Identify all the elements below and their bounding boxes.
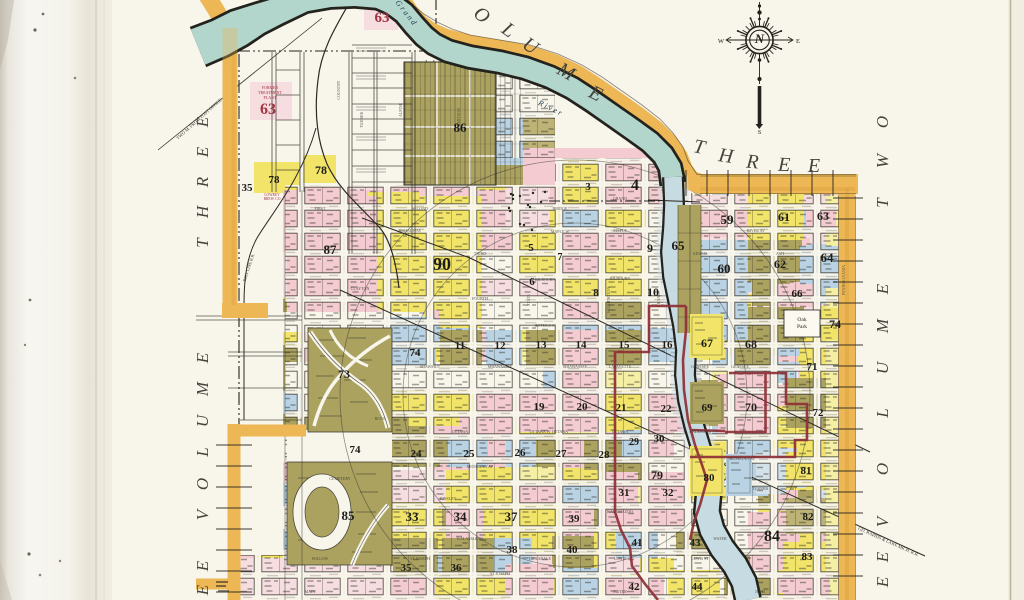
svg-text:O: O [193,478,212,490]
svg-text:E: E [873,551,892,563]
svg-text:ALPINE: ALPINE [398,102,403,117]
svg-text:78: 78 [315,163,327,177]
svg-text:M: M [873,318,892,334]
svg-text:THIRD: THIRD [474,251,486,256]
svg-text:62: 62 [774,257,786,271]
svg-text:40: 40 [567,544,579,556]
svg-text:KILBOURN: KILBOURN [535,277,556,282]
svg-text:CLAYTON: CLAYTON [351,286,370,291]
svg-text:KINSLEY: KINSLEY [439,496,456,501]
svg-text:TURNER: TURNER [359,112,364,128]
svg-text:42: 42 [629,581,641,593]
svg-text:SHAWMUT: SHAWMUT [420,364,441,369]
svg-text:U: U [193,413,212,427]
svg-text:65: 65 [672,238,686,253]
svg-text:24: 24 [411,448,423,460]
svg-text:OTTAWA: OTTAWA [552,429,568,434]
svg-text:9: 9 [647,241,653,255]
svg-text:61: 61 [778,210,790,224]
svg-text:FOURTH: FOURTH [472,296,488,301]
svg-text:RIVER AV: RIVER AV [747,228,765,233]
svg-text:60: 60 [718,261,731,276]
svg-text:67: 67 [701,336,713,350]
svg-text:25: 25 [464,448,476,460]
svg-text:COUNTRY: COUNTRY [336,80,341,99]
svg-text:38: 38 [507,544,519,556]
svg-text:ADAMS: ADAMS [693,251,707,256]
svg-text:GENESEE: GENESEE [691,364,709,369]
svg-text:E: E [193,584,212,596]
svg-text:GENESEE: GENESEE [731,364,749,369]
svg-text:15: 15 [619,339,631,351]
svg-text:BROADWAY: BROADWAY [399,228,422,233]
svg-text:KALAMAZOO: KALAMAZOO [607,509,633,514]
svg-text:WILLOW: WILLOW [312,556,329,561]
svg-text:FIRST: FIRST [315,206,326,211]
svg-text:66: 66 [792,288,804,300]
svg-text:39: 39 [569,513,581,525]
svg-text:69: 69 [702,402,714,414]
svg-text:33: 33 [406,509,420,524]
svg-text:64: 64 [821,250,835,265]
svg-text:MICHIGAN AV: MICHIGAN AV [729,456,756,461]
svg-text:LAFAYETTE: LAFAYETTE [609,364,632,369]
svg-text:HILLSDALE: HILLSDALE [529,556,552,561]
svg-text:OTTAWA: OTTAWA [612,429,628,434]
svg-text:Park: Park [797,324,807,330]
svg-text:78: 78 [269,174,281,186]
svg-text:30: 30 [654,433,666,445]
svg-text:U: U [873,360,892,374]
svg-text:JEFFERSON: JEFFERSON [534,323,556,328]
svg-text:GRAND: GRAND [613,196,627,201]
svg-text:MAIN: MAIN [305,589,316,594]
svg-text:SHIAWASSEE: SHIAWASSEE [488,364,513,369]
svg-text:O: O [873,463,892,475]
svg-text:36: 36 [451,562,463,574]
svg-text:7: 7 [558,252,563,263]
svg-text:STATE: STATE [526,294,531,306]
svg-text:21: 21 [616,402,627,414]
svg-text:KALAMAZOO: KALAMAZOO [457,536,483,541]
svg-text:41: 41 [632,537,643,549]
svg-text:5: 5 [528,242,534,254]
svg-text:LEWIS ST: LEWIS ST [691,556,709,561]
svg-text:L: L [873,408,892,418]
svg-text:4: 4 [631,177,639,194]
svg-text:ANDERSON: ANDERSON [689,429,711,434]
svg-text:PENNSYLVANIA: PENNSYLVANIA [841,265,846,295]
svg-text:T: T [193,237,212,248]
svg-text:13: 13 [536,339,548,351]
svg-text:MICHIGAN AV: MICHIGAN AV [467,464,494,469]
svg-text:SECOND: SECOND [412,206,428,211]
svg-text:11: 11 [455,340,465,352]
svg-text:E: E [777,154,791,176]
svg-text:72: 72 [813,407,825,419]
svg-text:32: 32 [663,487,675,499]
svg-text:87: 87 [324,242,338,257]
svg-text:W: W [873,152,892,168]
svg-text:CEMETERY: CEMETERY [329,476,350,481]
svg-text:63: 63 [375,10,390,26]
svg-text:FRONT: FRONT [691,513,696,527]
svg-text:H: H [193,204,212,219]
svg-text:59: 59 [721,212,735,227]
svg-text:LEWIS: LEWIS [614,556,626,561]
svg-text:R: R [744,150,759,173]
svg-text:ST JOSEPH: ST JOSEPH [490,571,510,576]
svg-text:W: W [718,38,725,45]
svg-text:ASH: ASH [776,251,784,256]
svg-text:E: E [193,560,212,572]
svg-text:SHIAWASSEE: SHIAWASSEE [563,364,588,369]
svg-text:63: 63 [260,101,276,118]
svg-text:ST JOSEPH: ST JOSEPH [410,556,430,561]
svg-text:JELM: JELM [755,589,765,594]
svg-text:44: 44 [692,581,704,593]
svg-text:E: E [807,155,820,177]
svg-text:E: E [873,576,892,588]
svg-text:BRIDGE: BRIDGE [553,206,568,211]
svg-text:Oak: Oak [797,317,806,323]
svg-text:79: 79 [651,468,663,482]
svg-text:84: 84 [764,528,780,545]
svg-text:N: N [754,31,765,46]
svg-text:BLVD: BLVD [375,416,386,421]
svg-text:TURNER: TURNER [752,486,768,491]
svg-text:26: 26 [515,447,527,459]
svg-text:22: 22 [661,403,673,415]
svg-text:HILBOURN: HILBOURN [610,276,631,281]
svg-text:E: E [193,146,212,158]
svg-text:31: 31 [619,487,630,499]
svg-text:73: 73 [338,367,350,381]
svg-text:METER: METER [613,589,627,594]
svg-text:35: 35 [242,182,254,194]
svg-text:WATER: WATER [713,536,727,541]
svg-text:R: R [193,176,212,188]
svg-text:E: E [193,352,212,364]
svg-text:43: 43 [690,537,702,549]
svg-text:82: 82 [803,511,815,523]
svg-text:63: 63 [817,209,829,223]
svg-text:OTTAWA: OTTAWA [452,429,468,434]
svg-text:80: 80 [704,472,716,484]
svg-text:90: 90 [433,254,451,274]
svg-text:71: 71 [807,361,818,373]
svg-text:E: E [193,116,212,128]
svg-text:T: T [873,197,892,208]
svg-text:83: 83 [802,551,814,563]
svg-text:OTTAWA W: OTTAWA W [530,429,551,434]
svg-text:19: 19 [534,401,546,413]
svg-text:74: 74 [410,347,422,359]
svg-text:74: 74 [829,317,841,331]
svg-text:37: 37 [505,509,519,524]
svg-text:85: 85 [342,508,356,523]
svg-text:27: 27 [556,448,568,460]
svg-text:34: 34 [454,509,468,524]
svg-text:L: L [193,447,212,457]
svg-text:12: 12 [495,340,507,352]
svg-text:68: 68 [745,337,757,351]
svg-text:74: 74 [350,444,362,456]
svg-text:E: E [873,283,892,295]
svg-text:O: O [873,116,892,128]
svg-text:20: 20 [577,401,589,413]
svg-text:70: 70 [745,400,757,414]
svg-text:E: E [796,38,800,45]
svg-text:29: 29 [629,437,639,448]
svg-text:3: 3 [585,181,591,193]
svg-text:PLANT: PLANT [264,95,277,100]
svg-text:35: 35 [401,562,413,574]
svg-text:81: 81 [801,465,812,477]
svg-text:MAPLE W: MAPLE W [551,229,569,234]
svg-text:8: 8 [593,287,599,299]
svg-text:BREW. CO: BREW. CO [264,197,281,201]
svg-text:WASHINGTON: WASHINGTON [606,287,611,314]
svg-text:16: 16 [662,339,674,351]
svg-text:MAPLE: MAPLE [613,228,627,233]
svg-text:S: S [758,130,761,136]
svg-text:14: 14 [576,339,588,351]
svg-text:28: 28 [599,449,611,461]
svg-text:GRAND: GRAND [656,293,661,307]
svg-text:ROBERTSON: ROBERTSON [456,108,461,132]
svg-text:M: M [193,381,212,397]
